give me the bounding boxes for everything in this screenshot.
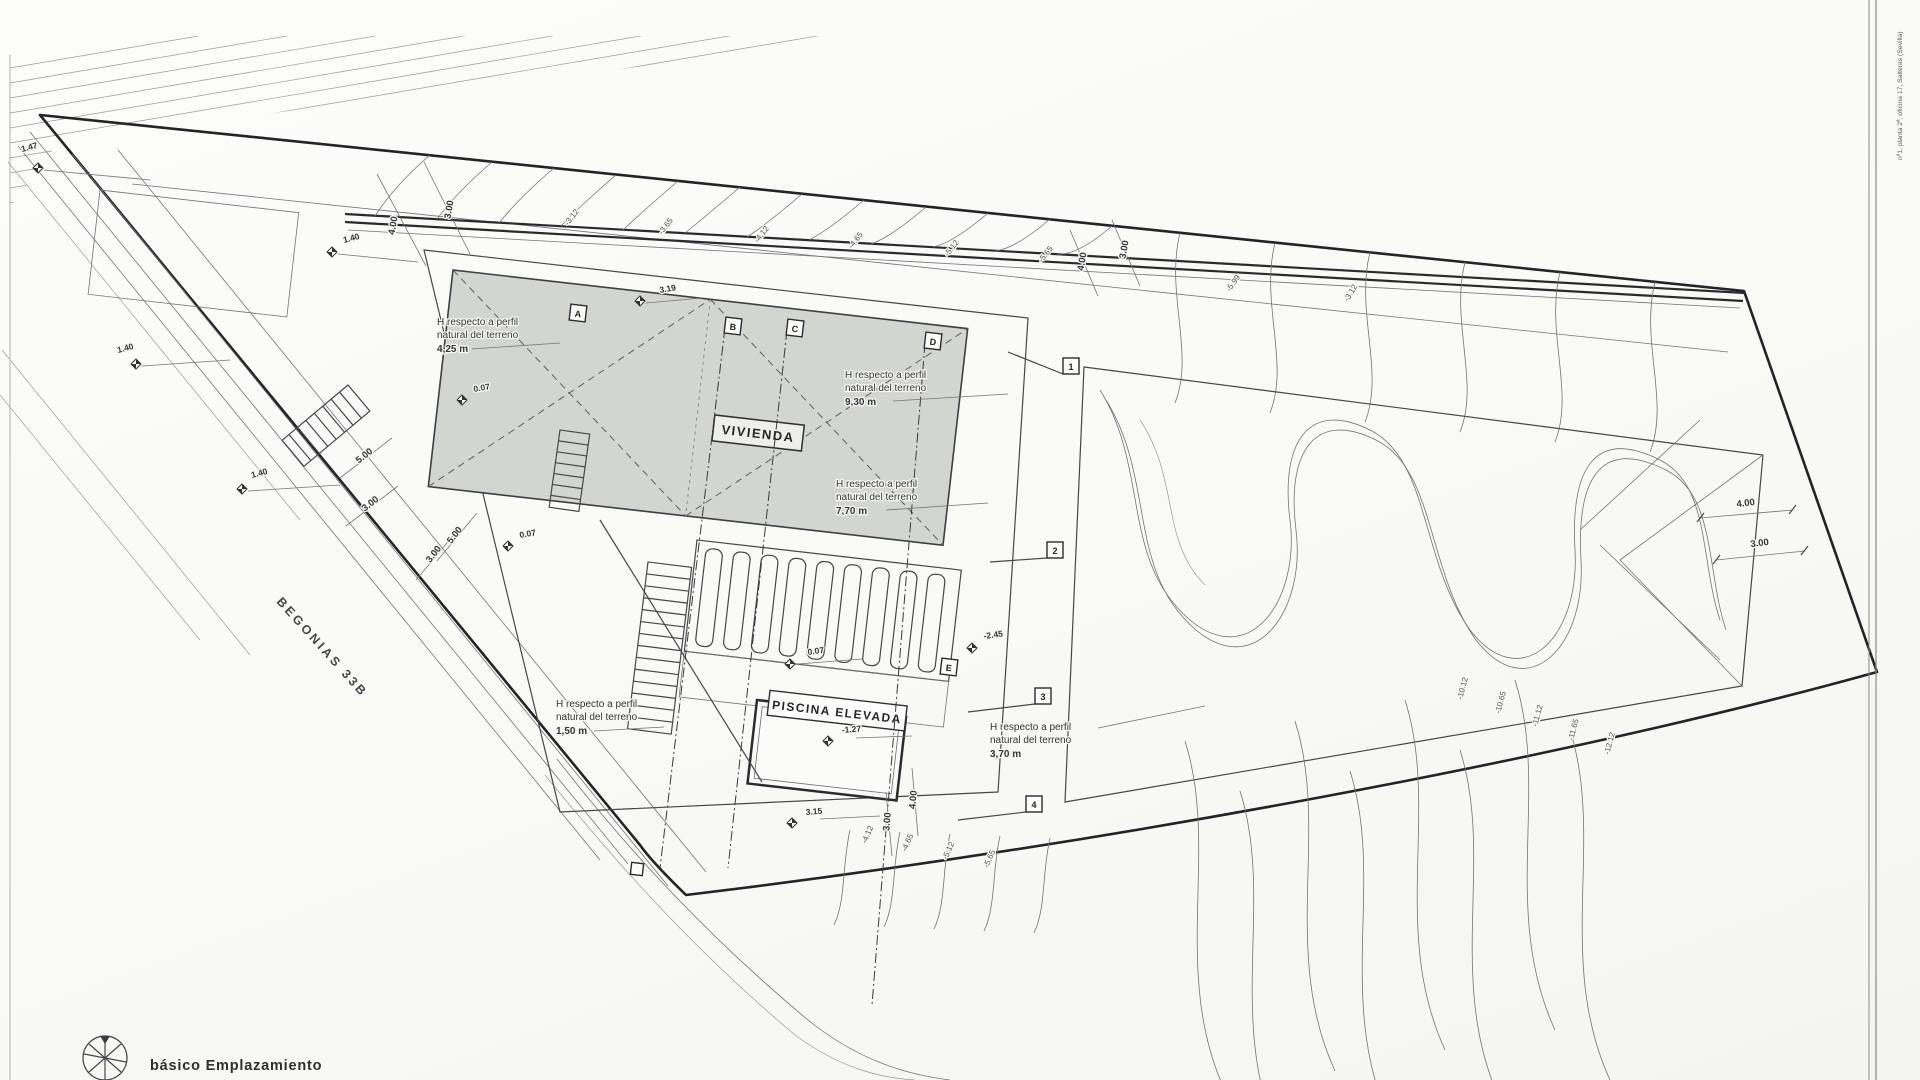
contour-label: -4.12 (860, 824, 876, 845)
margin-note-label: nº1, planta 2ª, oficina 17, Salteras (Se… (1897, 31, 1904, 160)
contour-label: -4.12 (752, 224, 771, 244)
svg-text:natural del terreno: natural del terreno (556, 712, 638, 723)
spot-elevation-label: 1.40 (116, 341, 135, 355)
scanned-site-plan-page: VIVIENDA PISCINA ELEVADA (0, 0, 1920, 1080)
contour-lines-bottom-right (834, 680, 1610, 1080)
dimension-label: 3.00 (360, 494, 381, 514)
dimension-label: 4.00 (1076, 252, 1090, 272)
spot-elevation-label: 0.07 (807, 645, 825, 657)
house-block (428, 270, 967, 545)
dimension-label: 5.00 (354, 446, 375, 466)
footer-legend: básico Emplazamiento (83, 1036, 322, 1080)
contour-label: -10.65 (1493, 690, 1508, 715)
contour-label: -11.12 (1530, 703, 1545, 727)
contour-label: -11.65 (1566, 717, 1581, 741)
contour-label: -4.65 (846, 230, 865, 250)
dimension-label: 4.00 (907, 790, 920, 809)
axis-bubble-e: E (945, 663, 952, 674)
contour-lines-right (1100, 233, 1726, 668)
contour-label: -4.65 (900, 832, 916, 853)
dimension-label: 5.00 (445, 525, 465, 546)
dimension-label: 4.00 (1736, 497, 1756, 510)
contour-label: -5.65 (982, 848, 998, 869)
spot-elevation-label: 1.40 (342, 231, 361, 245)
svg-text:natural del terreno: natural del terreno (845, 383, 927, 394)
svg-text:natural del terreno: natural del terreno (437, 330, 519, 341)
dimension-label: 3.00 (443, 200, 457, 220)
svg-text:natural del terreno: natural del terreno (990, 735, 1072, 746)
street-hatch-lines (10, 0, 870, 233)
svg-text:H respecto a perfil: H respecto a perfil (836, 479, 917, 490)
contour-label: -5.99 (1224, 273, 1242, 294)
svg-text:7,70 m: 7,70 m (836, 506, 867, 517)
contour-lines-top (375, 155, 1112, 254)
svg-text:9,30 m: 9,30 m (845, 397, 876, 408)
svg-text:1,50 m: 1,50 m (556, 726, 587, 737)
entrance-platform (88, 190, 299, 317)
spot-elevation-label: -1.27 (841, 723, 861, 735)
axis-bubble-1: 1 (1068, 362, 1073, 372)
tree-icon (83, 1036, 127, 1080)
site-plan-drawing: VIVIENDA PISCINA ELEVADA (0, 0, 1920, 1080)
svg-text:4,25 m: 4,25 m (437, 344, 468, 355)
spot-elevation-label: 3.15 (805, 806, 823, 817)
contour-label: -12.12 (1602, 731, 1617, 756)
dimension-label: 3.00 (881, 812, 894, 831)
axis-bubble-4: 4 (1031, 800, 1036, 810)
svg-text:H respecto a perfil: H respecto a perfil (437, 317, 518, 328)
contour-label: -3.12 (562, 207, 581, 227)
spot-elevation-label: 3.19 (659, 282, 677, 295)
axis-marker-box (630, 862, 643, 875)
spot-elevation-label: 0.07 (519, 527, 537, 540)
axis-bubble-2: 2 (1052, 546, 1057, 556)
svg-text:3,70 m: 3,70 m (990, 749, 1021, 760)
ramp-edge-line (600, 520, 762, 782)
axis-bubble-3: 3 (1040, 692, 1045, 702)
street-name-label: BEGONIAS 33B (274, 595, 371, 700)
svg-text:H respecto a perfil: H respecto a perfil (990, 722, 1071, 733)
spot-elevation-label: 1.47 (20, 140, 39, 154)
annotation-h370: H respecto a perfil natural del terreno … (990, 706, 1205, 760)
svg-text:H respecto a perfil: H respecto a perfil (556, 699, 637, 710)
svg-text:H respecto a perfil: H respecto a perfil (845, 370, 926, 381)
contour-label: -10.12 (1455, 676, 1470, 701)
footer-label: básico Emplazamiento (150, 1058, 322, 1074)
svg-text:natural del terreno: natural del terreno (836, 492, 918, 503)
spot-elevation-label: -2.45 (983, 628, 1004, 641)
dimension-label: 3.00 (1118, 240, 1132, 260)
dimension-label: 3.00 (1750, 537, 1770, 550)
